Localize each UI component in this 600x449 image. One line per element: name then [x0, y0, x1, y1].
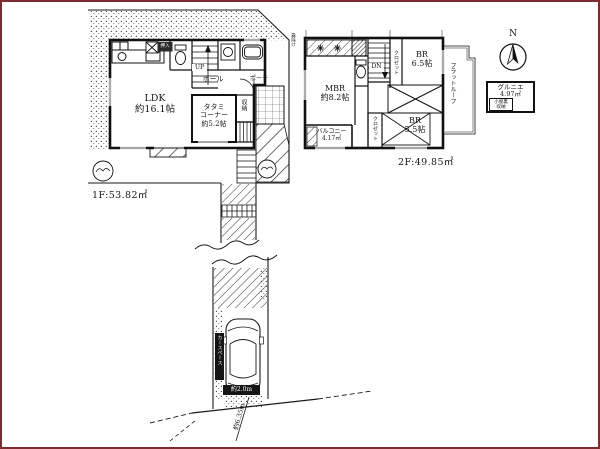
floorplan-page: LDK 約16.1帖 タタミ コーナー 約5.2帖 ホール UP 収納 押入 ポ… — [0, 0, 600, 449]
floor2-area-label: 2F:49.85㎡ — [398, 157, 488, 168]
flat-roof-outline — [443, 46, 475, 134]
stairs-up-label: UP — [192, 64, 207, 71]
room-label-tatami-corner: タタミ コーナー 約5.2帖 — [193, 103, 235, 128]
room-label-balcony: バルコニー 4.17㎡ — [311, 128, 352, 142]
legend-grenier-label: グルニエ 4.97㎡ — [488, 84, 533, 99]
legend-note-label: 小屋裏 収納 — [490, 100, 512, 111]
car-space-label: カースペース — [217, 335, 222, 365]
floor1-area-label: 1F:53.82㎡ — [92, 190, 182, 201]
closet-label-oshiire: 押入 — [158, 44, 173, 50]
compass-icon — [500, 44, 526, 70]
deck-step — [150, 148, 186, 157]
stepping-grid — [222, 205, 256, 217]
floorplan-drawing — [0, 0, 600, 449]
closet-dark — [352, 40, 366, 56]
canopy-label: 霧除け — [290, 33, 295, 47]
closet-1f — [146, 42, 158, 53]
closet2-label: クロゼット — [372, 116, 377, 141]
compass-north-label: N — [506, 29, 520, 40]
stairs-down-label: DN — [369, 63, 384, 70]
room-label-hall: ホール — [199, 75, 227, 83]
room-label-br2: BR 5.5帖 — [398, 116, 432, 135]
room-label-ldk: LDK 約16.1帖 — [120, 93, 190, 115]
car-illustration — [223, 319, 264, 393]
break-wave-top — [195, 240, 259, 249]
driveway — [150, 183, 372, 441]
room-label-br1: BR 6.5帖 — [405, 50, 439, 69]
canopy-band — [307, 40, 352, 56]
room-label-porch: ポーチ — [246, 75, 272, 82]
car-dim-label: 約2.0m — [223, 386, 260, 393]
porch-tiles — [256, 86, 284, 124]
closet1-label: クロゼット — [393, 50, 398, 75]
room-label-storage: 収納 — [240, 99, 246, 111]
room-label-mbr: MBR 約8.2帖 — [314, 84, 356, 103]
approach-steps — [237, 150, 256, 183]
dimension-ticks — [306, 30, 442, 37]
break-wave-bottom — [212, 255, 277, 264]
flat-roof-label: フラットルーフ — [449, 62, 455, 104]
